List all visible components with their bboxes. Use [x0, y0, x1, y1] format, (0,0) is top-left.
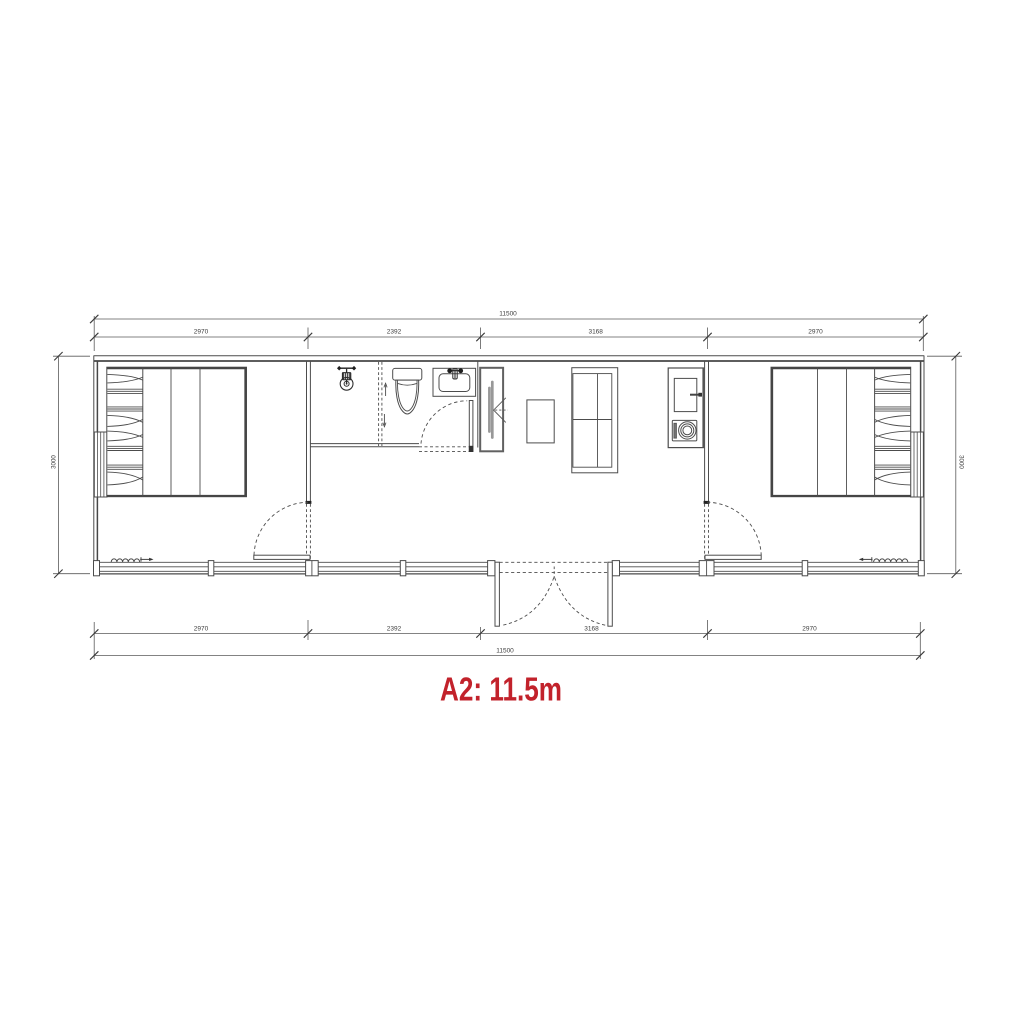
svg-text:3000: 3000 [958, 455, 965, 469]
svg-text:3168: 3168 [588, 329, 603, 336]
svg-text:2970: 2970 [194, 626, 209, 633]
svg-text:2970: 2970 [802, 626, 817, 633]
svg-text:11500: 11500 [499, 311, 517, 318]
svg-text:2392: 2392 [387, 626, 402, 633]
svg-text:2970: 2970 [194, 329, 209, 336]
svg-text:3168: 3168 [584, 626, 599, 633]
svg-text:3000: 3000 [51, 455, 58, 469]
svg-text:11500: 11500 [496, 648, 514, 655]
svg-text:2970: 2970 [808, 329, 823, 336]
svg-text:2392: 2392 [387, 329, 402, 336]
svg-text:A2: 11.5m: A2: 11.5m [440, 671, 562, 708]
